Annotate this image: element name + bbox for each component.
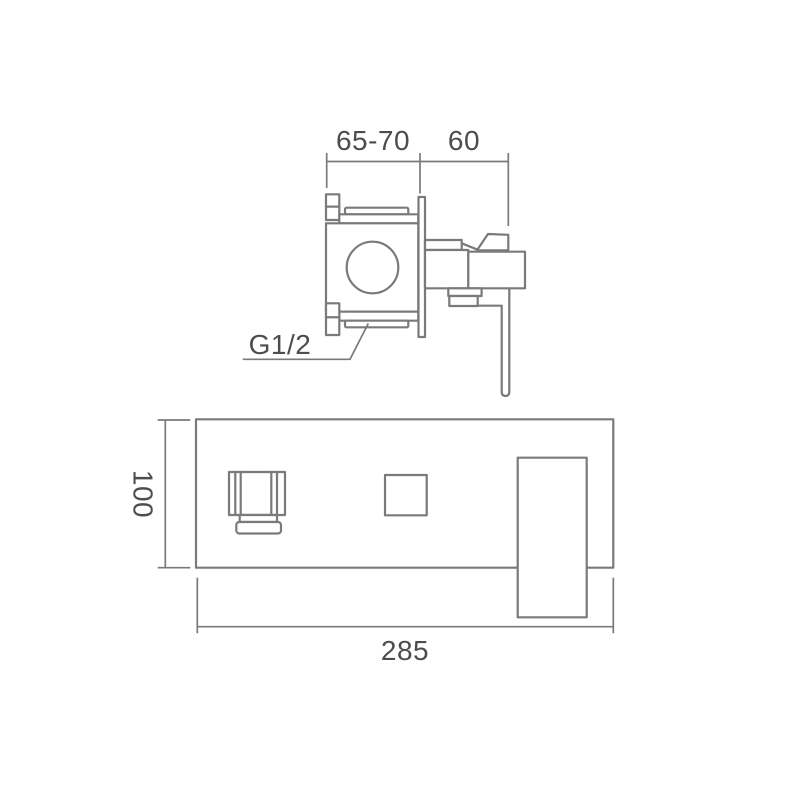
handle-body — [468, 252, 525, 289]
handle-base-cap — [425, 240, 462, 250]
spout-base — [236, 522, 281, 534]
handle-tip — [477, 234, 508, 250]
dim-label-projection: 60 — [448, 125, 480, 156]
trim-ring-lower — [449, 296, 477, 306]
inlet-pipe-top — [339, 214, 418, 223]
inlet-nut-top-lower — [326, 207, 339, 220]
handle-front — [518, 458, 587, 618]
inlet-nut-bottom-lower — [326, 317, 339, 335]
inlet-pipe-bottom — [339, 312, 418, 321]
height-dimension: 100 — [128, 420, 191, 568]
dim-label-plate-width: 285 — [381, 635, 429, 666]
valve-side-view: 65-70 60 — [243, 125, 525, 396]
mixer-trim-square — [385, 475, 427, 515]
handle-lever — [478, 288, 510, 396]
dim-label-plate-height: 100 — [128, 470, 159, 518]
handle-cap-joint-line — [462, 243, 477, 249]
spout-front — [229, 472, 285, 534]
faucet-installation-drawing: 65-70 60 — [0, 0, 800, 800]
thread-label: G1/2 — [249, 329, 312, 360]
trim-ring-upper — [448, 288, 481, 296]
technical-drawing-canvas: 65-70 60 — [0, 0, 800, 800]
cartridge-neck — [425, 250, 468, 288]
dim-label-valve-depth: 65-70 — [336, 125, 410, 156]
inlet-nut-top-upper — [326, 194, 339, 206]
cartridge-circle — [347, 242, 399, 294]
faceplate-front-view: 100 285 — [128, 419, 614, 666]
thread-callout: G1/2 — [243, 324, 369, 361]
inlet-nut-bottom-upper — [326, 303, 339, 317]
pipe-sleeve-bottom — [345, 321, 408, 328]
